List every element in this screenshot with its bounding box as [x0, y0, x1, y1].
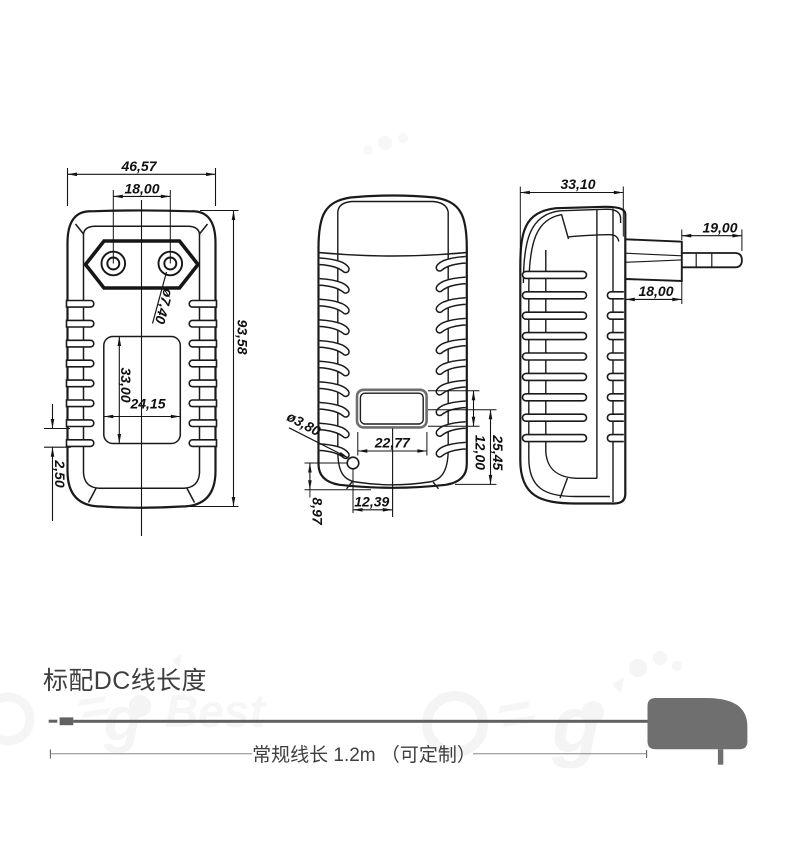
svg-text:12,39: 12,39 [354, 494, 389, 510]
svg-text:2,50: 2,50 [52, 459, 68, 487]
svg-text:24,15: 24,15 [129, 396, 165, 412]
svg-text:常规线长 1.2m （可定制）: 常规线长 1.2m （可定制） [252, 744, 476, 766]
svg-text:ø7,40: ø7,40 [152, 287, 177, 326]
svg-text:25,45: 25,45 [490, 434, 506, 470]
svg-text:g: g [551, 680, 601, 769]
svg-text:33,10: 33,10 [560, 176, 595, 192]
svg-text:8,97: 8,97 [310, 497, 326, 525]
svg-text:46,57: 46,57 [120, 158, 157, 174]
svg-text:标配DC线长度: 标配DC线长度 [43, 667, 207, 695]
svg-text:18,00: 18,00 [124, 181, 159, 197]
svg-text:19,00: 19,00 [702, 219, 737, 235]
svg-text:g: g [103, 685, 142, 754]
svg-text:22,77: 22,77 [374, 435, 411, 451]
svg-text:18,00: 18,00 [638, 283, 673, 299]
svg-text:12,00: 12,00 [473, 435, 489, 470]
svg-text:93,58: 93,58 [235, 319, 251, 354]
